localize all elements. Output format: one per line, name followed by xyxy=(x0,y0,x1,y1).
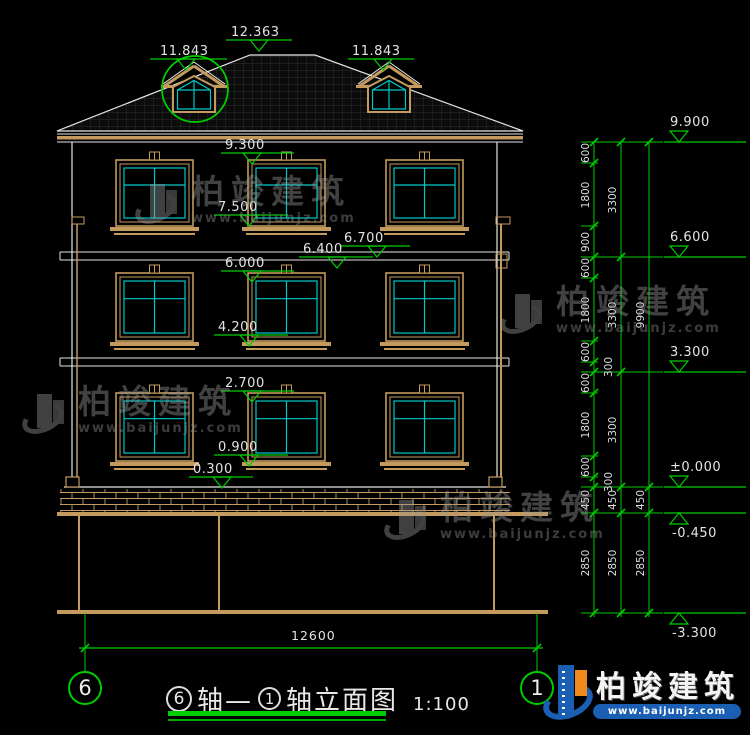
watermark-logo-icon xyxy=(133,172,185,228)
watermark-name: 柏竣建筑 xyxy=(556,285,721,318)
level-flag-triangle xyxy=(213,477,231,488)
downspout-elbow-right xyxy=(496,217,510,224)
level-flag-triangle xyxy=(670,613,688,624)
window-sill-line xyxy=(246,233,327,235)
title-axis-start-bubble: 6 xyxy=(166,686,192,712)
watermark-name: 柏竣建筑 xyxy=(78,385,243,418)
watermark-logo-icon xyxy=(498,282,550,338)
brand-logo: 柏竣建筑 www.baijunjz.com xyxy=(542,658,748,730)
watermark-logo-icon xyxy=(20,382,72,438)
pilaster-base-right xyxy=(489,477,502,487)
window-sill-line xyxy=(384,233,465,235)
watermark: 柏竣建筑 www.baijunjz.com xyxy=(133,172,356,228)
watermark-url: www.baijunjz.com xyxy=(440,527,605,542)
window-sill-line xyxy=(246,348,327,350)
watermark-logo-icon xyxy=(382,488,434,544)
pilaster-base-left xyxy=(66,477,79,487)
brand-logo-icon xyxy=(542,660,594,726)
cad-linework xyxy=(0,0,750,735)
watermark-name: 柏竣建筑 xyxy=(440,491,605,524)
window-sill xyxy=(110,342,199,346)
brand-name: 柏竣建筑 xyxy=(596,662,740,706)
watermark: 柏竣建筑 www.baijunjz.com xyxy=(498,282,721,338)
watermark: 柏竣建筑 www.baijunjz.com xyxy=(382,488,605,544)
title-scale: 1:100 xyxy=(413,694,470,717)
watermark-url: www.baijunjz.com xyxy=(556,321,721,336)
window-sill xyxy=(242,342,331,346)
window-sill xyxy=(380,342,469,346)
window-sill xyxy=(242,462,331,466)
downspout-elbow-left xyxy=(72,217,84,224)
title-underline-thick xyxy=(168,711,386,716)
level-flag-triangle xyxy=(250,40,268,51)
elevation-drawing-canvas: 6001800900600180060030060018006003004502… xyxy=(0,0,750,735)
eave-fascia xyxy=(57,136,523,140)
level-flag-triangle xyxy=(670,513,688,524)
title-underline-thin xyxy=(168,719,386,721)
title-axis-end-bubble: 1 xyxy=(258,687,281,710)
window-sill-line xyxy=(384,348,465,350)
window-sill xyxy=(380,227,469,231)
watermark-name: 柏竣建筑 xyxy=(191,175,356,208)
brand-url: www.baijunjz.com xyxy=(593,704,741,719)
level-flag-triangle xyxy=(670,361,688,372)
watermark: 柏竣建筑 www.baijunjz.com xyxy=(20,382,243,438)
window-sill xyxy=(110,462,199,466)
basement-footing xyxy=(57,610,548,614)
window-sill-line xyxy=(114,468,195,470)
watermark-url: www.baijunjz.com xyxy=(191,211,356,226)
level-flag-triangle xyxy=(670,476,688,487)
level-flag-triangle xyxy=(328,257,346,268)
roof xyxy=(57,55,523,131)
window-sill-line xyxy=(246,468,327,470)
level-flag-triangle xyxy=(670,131,688,142)
axis-bubble-6-label: 6 xyxy=(68,671,102,705)
watermark-url: www.baijunjz.com xyxy=(78,421,243,436)
level-flag-triangle xyxy=(670,246,688,257)
window-sill xyxy=(380,462,469,466)
window-sill-line xyxy=(114,233,195,235)
window-sill-line xyxy=(384,468,465,470)
window-sill-line xyxy=(114,348,195,350)
